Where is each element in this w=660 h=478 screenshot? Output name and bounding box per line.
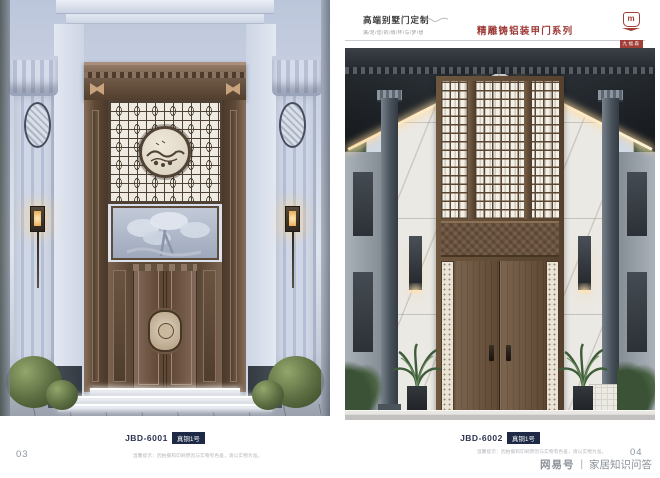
- lattice-center-medallion: [139, 126, 191, 178]
- sconce-glow: [578, 283, 591, 293]
- brand-name: 九福森: [620, 40, 643, 48]
- window-slot: [353, 172, 373, 236]
- stile-groove: [92, 110, 99, 382]
- disclaimer-left: 温馨提示：因拍摄和印刷原因与实物有色差，请以实物为准。: [133, 453, 262, 459]
- caption-right: JBD-6002真铜1号: [345, 429, 655, 441]
- product-code: JBD-6002: [460, 433, 503, 443]
- page-number-left: 03: [16, 449, 29, 460]
- oval-lattice-medallion-right: [279, 102, 306, 148]
- photo-edge-shadow-left: [0, 0, 10, 416]
- medallion-boss: [158, 323, 174, 339]
- material-badge: 真铜1号: [507, 432, 540, 445]
- side-panel-groove: [113, 270, 126, 382]
- bronze-stile-right: [222, 100, 246, 392]
- brand-shield-icon: m: [623, 12, 640, 27]
- watermark-separator: 丨: [577, 459, 588, 471]
- foreground-foliage-left: [345, 354, 383, 410]
- pine-relief-icon: [113, 208, 217, 258]
- bowtie-ornament-left: [90, 83, 104, 95]
- step: [58, 404, 272, 412]
- photo-edge-shadow-right: [321, 0, 330, 416]
- potted-palm-left: [391, 340, 443, 416]
- palm-fronds-icon: [557, 340, 609, 390]
- door-handle-left: [489, 345, 494, 361]
- door-leaf-right: [500, 261, 545, 411]
- series-header: 高端别墅门定制 满/足/您/的/情/怀/与/梦/想: [363, 14, 430, 36]
- photo-modern-entrance: [345, 48, 655, 420]
- door-top-lattice: [441, 81, 559, 219]
- watermark-brand: 网易号: [540, 459, 575, 471]
- door-center-medallion: [148, 310, 182, 352]
- topiary-bush: [252, 380, 284, 410]
- series-subtitle: 满/足/您/的/情/怀/与/梦/想: [363, 29, 430, 36]
- oval-lattice-medallion-left: [24, 102, 51, 148]
- landscape-relief-icon: [142, 129, 188, 175]
- sconce-glow: [34, 211, 41, 226]
- wall-cornice-lower: [66, 14, 264, 24]
- wall-panel-left: [54, 24, 84, 404]
- material-badge: 真铜1号: [172, 432, 205, 445]
- stile-groove: [230, 110, 237, 382]
- brand-ribbon-icon: [622, 28, 640, 31]
- step: [345, 414, 655, 420]
- dentil-band: [84, 72, 246, 78]
- palm-fronds-icon: [391, 340, 443, 390]
- sconce-glow: [409, 283, 422, 293]
- wall-sconce-left: [30, 206, 45, 232]
- sconce-rod-right: [292, 232, 294, 288]
- topiary-bush: [46, 380, 78, 410]
- sconce-glow: [289, 211, 296, 226]
- lattice-stile: [524, 81, 532, 219]
- door-leaf-left: [455, 261, 500, 411]
- bronze-double-doors: [108, 262, 222, 392]
- stone-relief-panel: [111, 206, 219, 260]
- catalog-page: 高端别墅门定制 满/足/您/的/情/怀/与/梦/想 精雕铸铝装甲门系列 m 九福…: [0, 0, 660, 478]
- wall-sconce-right: [285, 206, 300, 232]
- header-divider: [345, 40, 645, 41]
- lattice-stile: [468, 81, 476, 219]
- door-handle-right: [506, 345, 511, 361]
- flat-roof-band: [345, 48, 655, 74]
- signature-flourish-icon: [424, 16, 450, 24]
- sconce-rod-left: [37, 232, 39, 288]
- wall-cornice-upper: [56, 0, 274, 14]
- watermark-label: 家居知识问答: [589, 459, 652, 471]
- window-slot: [627, 272, 647, 352]
- entrance-steps: [345, 410, 655, 420]
- pilaster-capital-right: [272, 56, 322, 96]
- door-leaves-area: [441, 261, 559, 411]
- bronze-stile-left: [84, 100, 108, 392]
- door-top-ornament-row: [133, 264, 197, 271]
- disclaimer-right: 温馨提示：因拍摄和印刷原因与实物有色差，请以实物为准。: [477, 449, 606, 455]
- wall-sconce-left: [409, 236, 422, 290]
- entrance-steps: [58, 388, 272, 412]
- watermark: 网易号丨家居知识问答: [540, 457, 652, 472]
- product-code: JBD-6001: [125, 433, 168, 443]
- side-panel-groove: [203, 270, 216, 382]
- door-side-panel-left: [108, 262, 132, 392]
- woven-transom-panel: [441, 221, 559, 257]
- window-slot: [627, 172, 647, 236]
- door-side-panel-right: [198, 262, 222, 392]
- bronze-entablature: [84, 62, 246, 100]
- step: [74, 396, 256, 404]
- pilaster-capital-left: [8, 56, 58, 96]
- potted-palm-right: [557, 340, 609, 416]
- roof-dentil-band: [345, 67, 655, 74]
- collection-title: 精雕铸铝装甲门系列: [477, 23, 573, 37]
- cast-aluminium-door: [436, 76, 564, 416]
- bowtie-ornament-right: [226, 83, 240, 95]
- caption-left: JBD-6001真铜1号: [0, 429, 330, 441]
- step: [90, 388, 240, 396]
- wall-sconce-right: [578, 236, 591, 290]
- window-slot: [353, 272, 373, 352]
- foreground-foliage-right: [617, 354, 655, 410]
- photo-classical-entrance: [0, 0, 330, 416]
- series-title: 高端别墅门定制: [363, 14, 430, 26]
